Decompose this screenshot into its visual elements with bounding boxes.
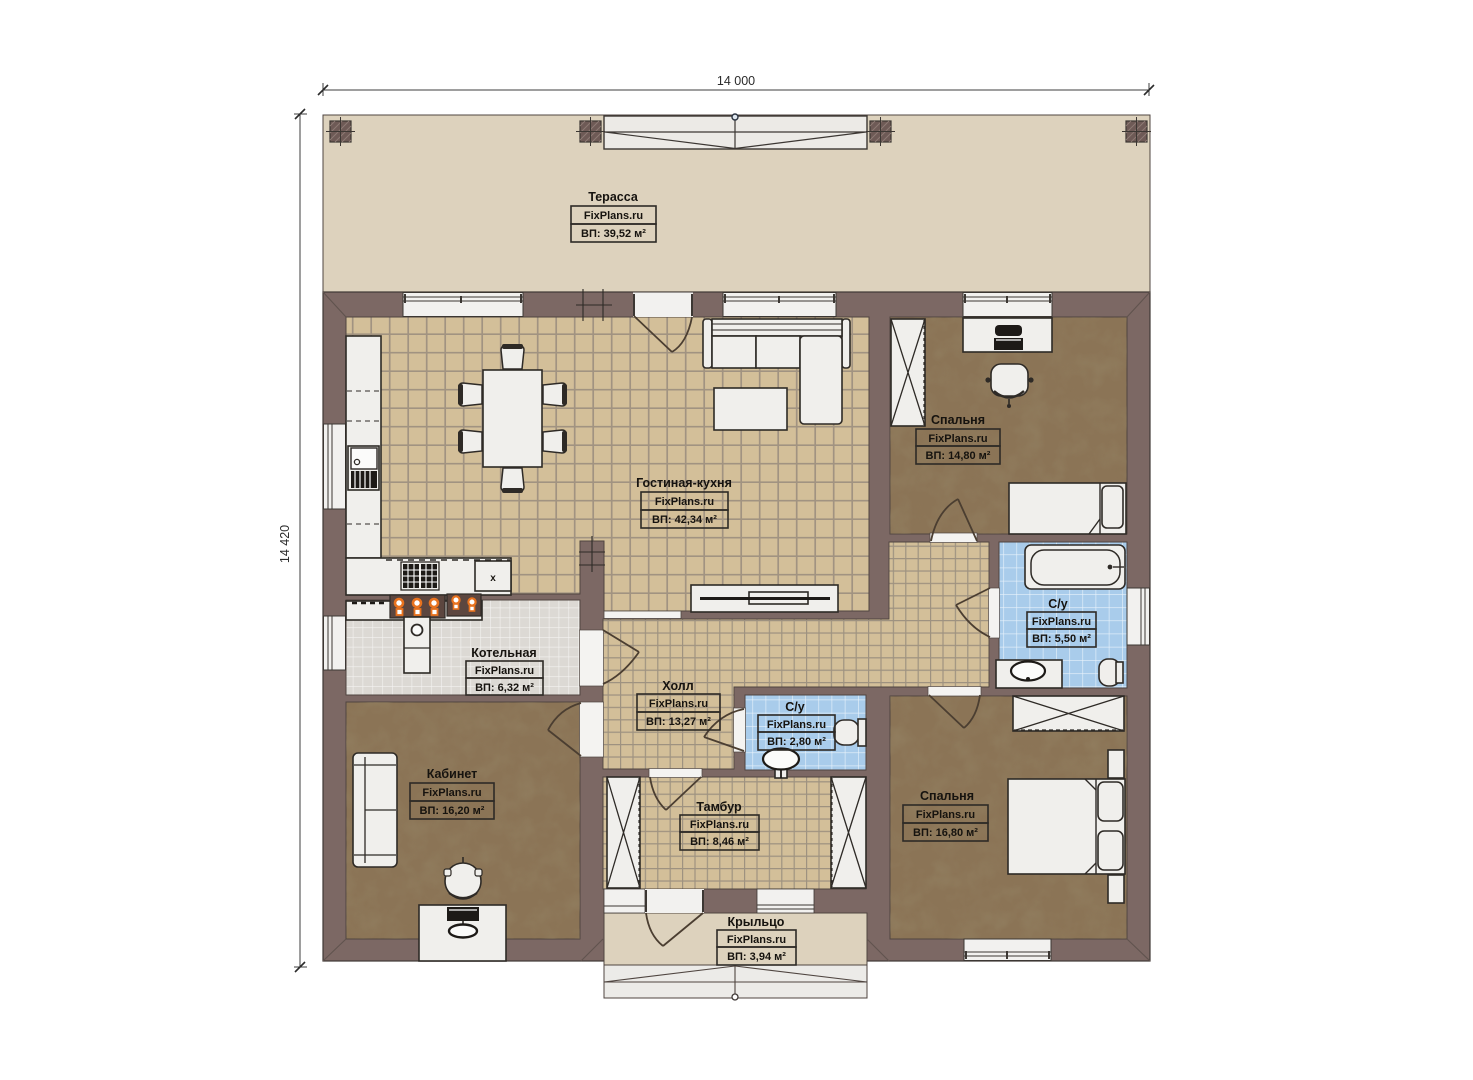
svg-text:FixPlans.ru: FixPlans.ru bbox=[767, 719, 826, 731]
svg-text:FixPlans.ru: FixPlans.ru bbox=[422, 787, 481, 799]
svg-text:ВП: 8,46 м²: ВП: 8,46 м² bbox=[690, 836, 749, 848]
svg-text:Крыльцо: Крыльцо bbox=[728, 915, 785, 929]
svg-text:FixPlans.ru: FixPlans.ru bbox=[649, 698, 708, 710]
svg-text:FixPlans.ru: FixPlans.ru bbox=[928, 433, 987, 445]
svg-text:ВП: 39,52 м²: ВП: 39,52 м² bbox=[581, 228, 646, 240]
svg-text:Кабинет: Кабинет bbox=[427, 767, 478, 781]
svg-text:FixPlans.ru: FixPlans.ru bbox=[690, 819, 749, 831]
svg-text:Котельная: Котельная bbox=[471, 646, 536, 660]
svg-text:ВП: 16,80 м²: ВП: 16,80 м² bbox=[913, 827, 978, 839]
svg-text:ВП: 14,80 м²: ВП: 14,80 м² bbox=[926, 450, 991, 462]
svg-text:ВП: 42,34 м²: ВП: 42,34 м² bbox=[652, 514, 717, 526]
svg-text:FixPlans.ru: FixPlans.ru bbox=[655, 496, 714, 508]
svg-text:Тамбур: Тамбур bbox=[696, 800, 742, 814]
svg-text:FixPlans.ru: FixPlans.ru bbox=[727, 934, 786, 946]
svg-text:ВП: 16,20 м²: ВП: 16,20 м² bbox=[420, 805, 485, 817]
svg-text:14 000: 14 000 bbox=[717, 74, 755, 88]
svg-text:FixPlans.ru: FixPlans.ru bbox=[1032, 616, 1091, 628]
svg-text:ВП: 6,32 м²: ВП: 6,32 м² bbox=[475, 682, 534, 694]
svg-text:ВП: 13,27 м²: ВП: 13,27 м² bbox=[646, 716, 711, 728]
svg-text:Гостиная-кухня: Гостиная-кухня bbox=[636, 476, 732, 490]
svg-text:Холл: Холл bbox=[662, 679, 693, 693]
svg-text:С/у: С/у bbox=[1048, 597, 1068, 611]
svg-text:14 420: 14 420 bbox=[278, 525, 292, 563]
svg-text:Спальня: Спальня bbox=[931, 413, 985, 427]
svg-text:FixPlans.ru: FixPlans.ru bbox=[584, 210, 643, 222]
svg-text:FixPlans.ru: FixPlans.ru bbox=[475, 665, 534, 677]
svg-text:Спальня: Спальня bbox=[920, 789, 974, 803]
svg-text:ВП: 2,80 м²: ВП: 2,80 м² bbox=[767, 736, 826, 748]
svg-text:ВП: 3,94 м²: ВП: 3,94 м² bbox=[727, 951, 786, 963]
svg-text:С/у: С/у bbox=[785, 700, 805, 714]
svg-text:x: x bbox=[490, 573, 496, 584]
svg-text:FixPlans.ru: FixPlans.ru bbox=[916, 809, 975, 821]
svg-text:ВП: 5,50 м²: ВП: 5,50 м² bbox=[1032, 633, 1091, 645]
svg-text:Терасса: Терасса bbox=[588, 190, 639, 204]
